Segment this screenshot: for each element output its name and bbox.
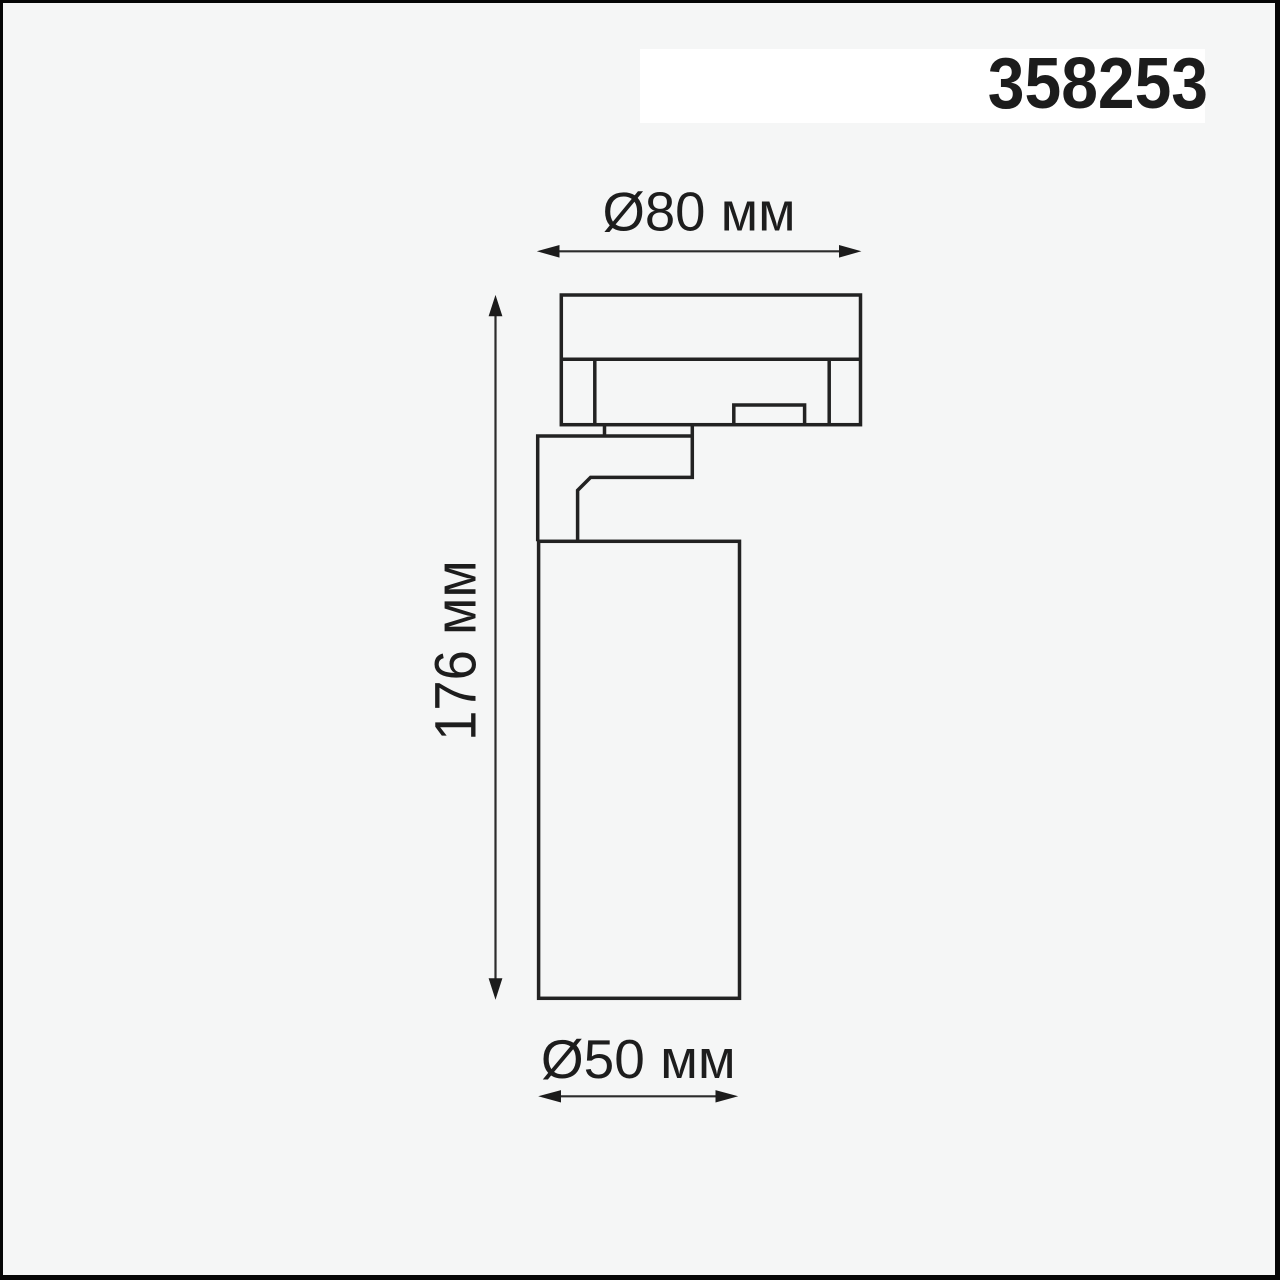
svg-text:Ø80 мм: Ø80 мм [602, 181, 795, 242]
svg-text:Ø50 мм: Ø50 мм [541, 1028, 736, 1090]
svg-text:176 мм: 176 мм [423, 560, 488, 741]
svg-text:358253: 358253 [988, 43, 1208, 123]
